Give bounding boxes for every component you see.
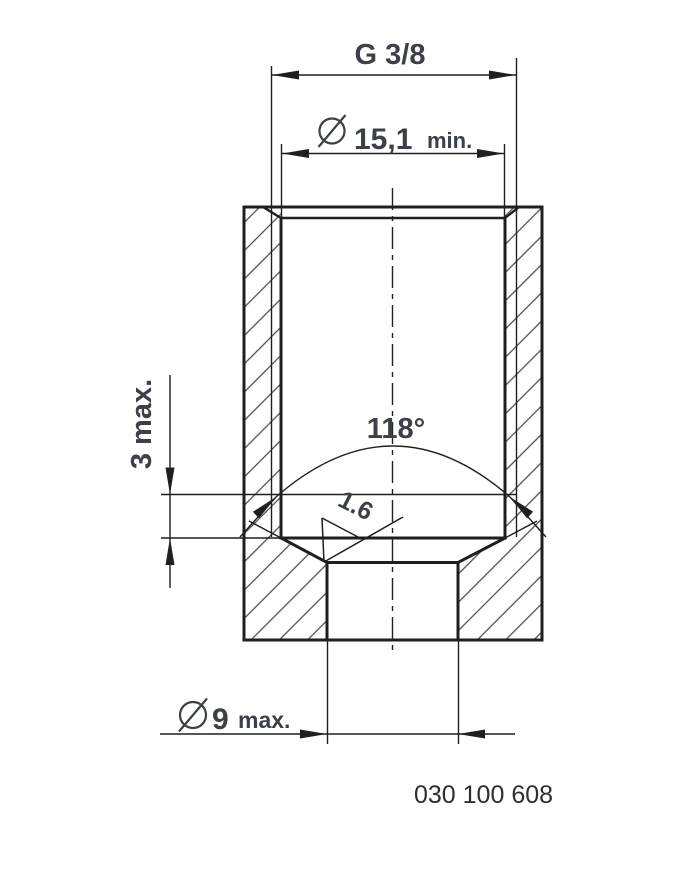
arrow-pilot-right bbox=[458, 730, 485, 739]
diameter-icon-pilot bbox=[179, 699, 207, 732]
depth-dimension-label: 3 max. bbox=[126, 379, 158, 469]
arrow-thread-left bbox=[272, 71, 299, 80]
arrow-depth-top bbox=[166, 468, 175, 495]
section-view-canvas: G 3/8 15,1 min. 118° 1.6 3 max. 9 max. 0… bbox=[0, 0, 700, 869]
thread-dimension-label: G 3/8 bbox=[355, 39, 426, 71]
arrow-pilot-left bbox=[300, 730, 327, 739]
pilot-value-label: 9 bbox=[212, 703, 229, 736]
hatch-right-wall bbox=[458, 208, 541, 639]
counterbore-qualifier-label: min. bbox=[427, 128, 472, 153]
arrow-thread-right bbox=[489, 71, 516, 80]
counterbore-value-label: 15,1 bbox=[354, 123, 412, 156]
hatch-left-wall bbox=[245, 208, 327, 639]
entry-chamfer bbox=[263, 207, 519, 218]
drawing-page: G 3/8 15,1 min. 118° 1.6 3 max. 9 max. 0… bbox=[0, 0, 700, 869]
arrow-counterbore-right bbox=[477, 149, 504, 158]
pilot-qualifier-label: max. bbox=[238, 707, 290, 733]
arrow-depth-bottom bbox=[166, 538, 175, 565]
arrow-counterbore-left bbox=[282, 149, 309, 158]
surface-roughness-label: 1.6 bbox=[334, 486, 378, 527]
part-number: 030 100 608 bbox=[414, 781, 553, 809]
cone-angle-label: 118° bbox=[367, 413, 425, 445]
diameter-icon-counterbore bbox=[319, 115, 346, 147]
